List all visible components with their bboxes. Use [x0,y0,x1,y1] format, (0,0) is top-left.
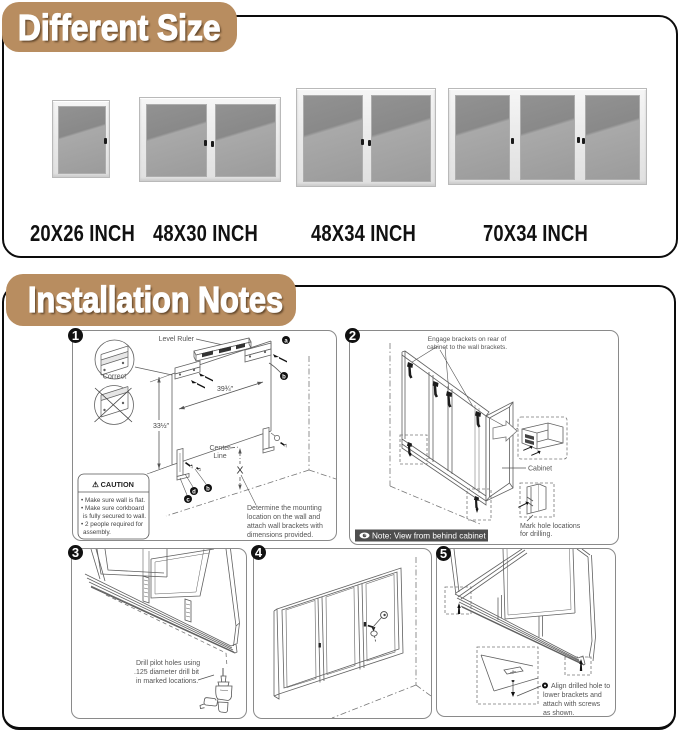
svg-text:Level Ruler: Level Ruler [159,336,195,343]
svg-text:for drilling.: for drilling. [520,531,552,538]
svg-text:Align drilled hole to: Align drilled hole to [551,683,610,690]
svg-text:Drill pilot holes using: Drill pilot holes using [136,660,200,667]
svg-text:dimensions provided.: dimensions provided. [247,532,313,539]
svg-text:⚠ CAUTION: ⚠ CAUTION [92,480,134,489]
svg-text:cabinet to the wall brackets.: cabinet to the wall brackets. [427,344,507,351]
svg-text:attach with screws: attach with screws [543,701,601,708]
svg-text:Correct: Correct [103,372,127,381]
svg-text:Cabinet: Cabinet [528,466,552,473]
svg-text:• Make sure corkboard: • Make sure corkboard [81,505,145,512]
svg-text:location on the wall and: location on the wall and [247,514,320,521]
svg-text:attach wall brackets with: attach wall brackets with [247,523,323,530]
svg-text:• Make sure wall is flat.: • Make sure wall is flat. [81,497,145,504]
svg-text:• 2 people required for: • 2 people required for [81,521,143,528]
svg-text:Determine the mounting: Determine the mounting [247,505,322,512]
svg-text:39¾″: 39¾″ [217,386,234,393]
svg-text:.125 diameter drill bit: .125 diameter drill bit [134,669,199,676]
svg-text:X: X [236,465,243,477]
svg-text:is fully secured to wall.: is fully secured to wall. [83,513,146,520]
svg-text:Engage brackets on rear of: Engage brackets on rear of [428,336,507,343]
svg-text:in marked locations.: in marked locations. [136,678,198,685]
svg-text:Mark hole locations: Mark hole locations [520,523,581,530]
svg-text:lower brackets and: lower brackets and [543,692,602,699]
svg-text:b: b [282,374,286,380]
svg-text:as shown.: as shown. [543,710,575,716]
svg-text:Note: View from behind cabinet: Note: View from behind cabinet [372,532,486,541]
svg-text:d: d [192,489,196,495]
svg-text:b: b [206,486,210,492]
svg-text:Center: Center [209,445,231,452]
svg-text:assembly.: assembly. [83,529,111,536]
svg-text:33½″: 33½″ [153,422,170,430]
svg-text:Line: Line [213,453,226,460]
